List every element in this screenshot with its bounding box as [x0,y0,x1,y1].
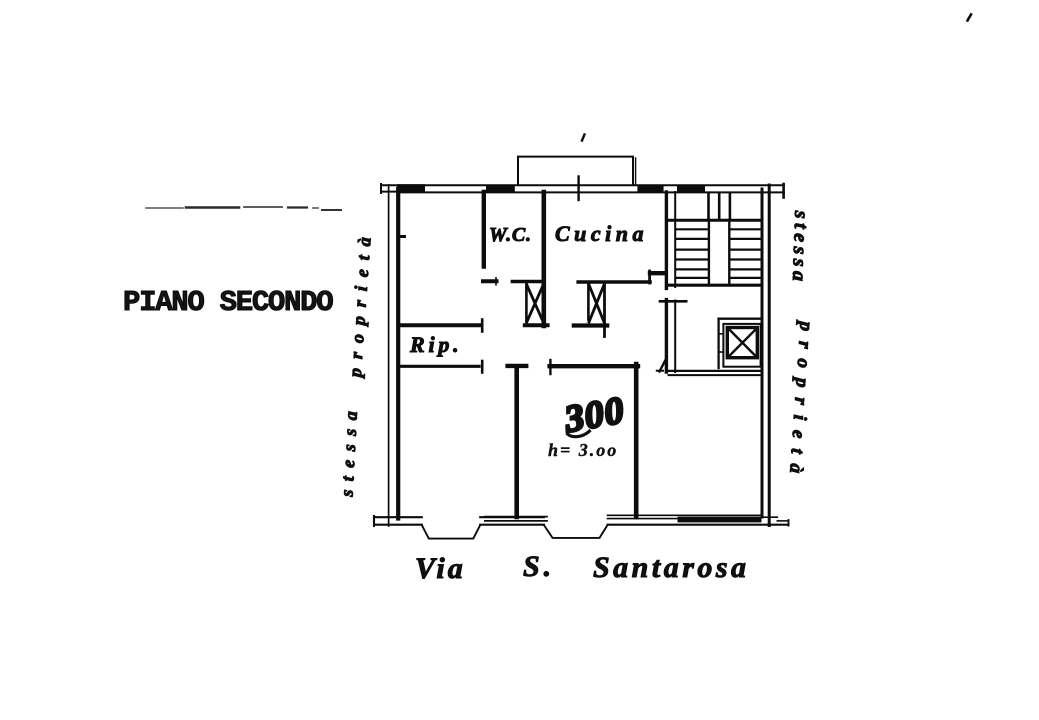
svg-text:proprietà: proprietà [345,228,375,380]
svg-text:PIANO SECONDO: PIANO SECONDO [123,286,333,319]
svg-text:300: 300 [560,389,627,441]
svg-text:W.C.: W.C. [489,224,532,246]
svg-text:Cucina: Cucina [555,221,648,246]
svg-text:Via: Via [415,552,466,585]
svg-text:proprietà: proprietà [784,319,816,484]
svg-text:Rip.: Rip. [409,332,463,357]
svg-text:h= 3.oo: h= 3.oo [548,440,618,460]
svg-text:S.: S. [523,550,555,583]
svg-text:stessa: stessa [337,402,362,498]
svg-text:Santarosa: Santarosa [593,551,750,584]
svg-text:stessa: stessa [788,209,813,286]
